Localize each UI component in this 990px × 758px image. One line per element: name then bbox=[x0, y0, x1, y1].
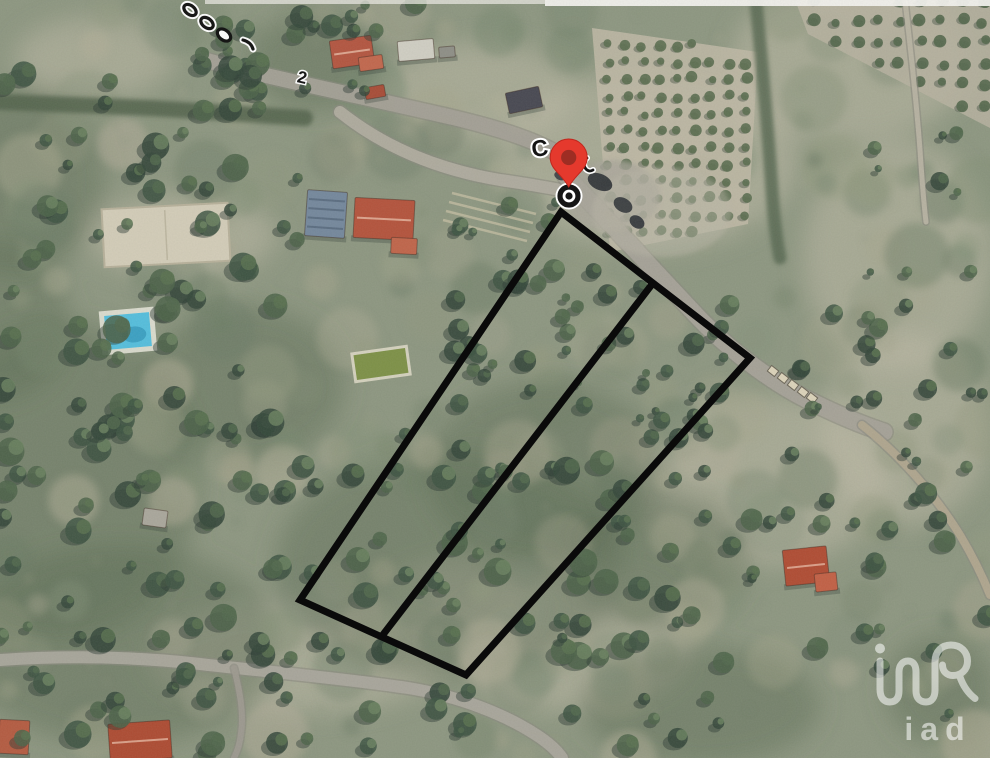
satellite-map: 2 C iad bbox=[0, 0, 990, 758]
iad-watermark-text: iad bbox=[904, 711, 971, 747]
pin-inner-circle bbox=[561, 150, 576, 165]
listing-map-image: 2 C iad bbox=[0, 0, 990, 758]
iad-logo-dot bbox=[875, 644, 885, 654]
